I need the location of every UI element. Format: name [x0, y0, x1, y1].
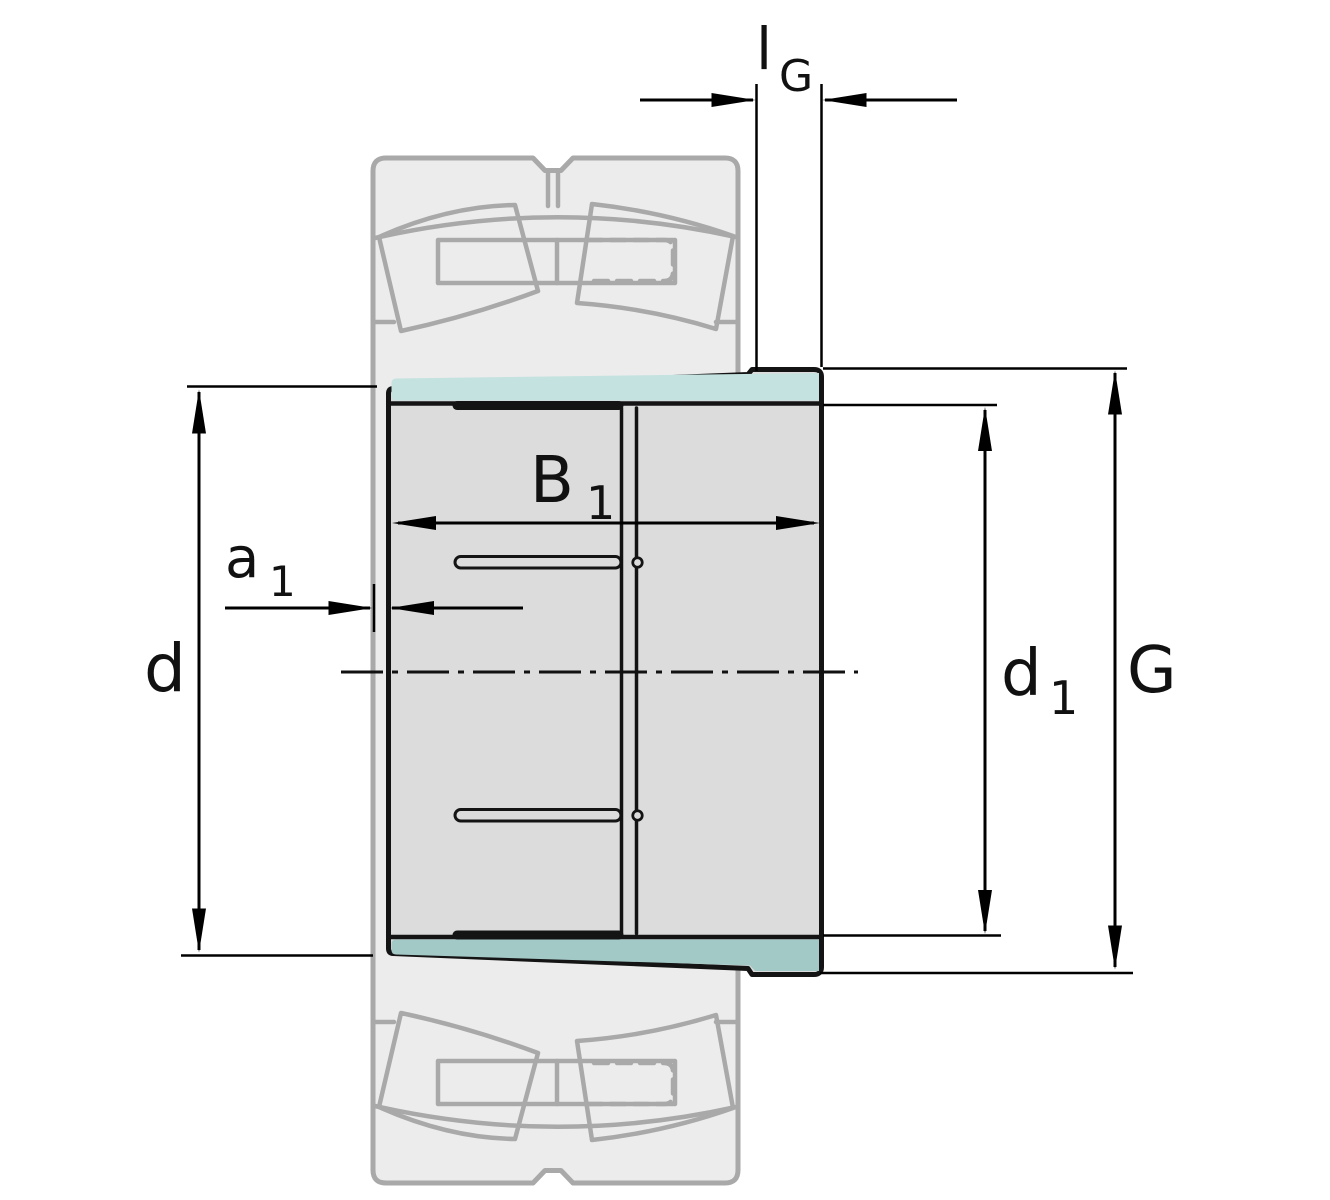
- arrowhead: [192, 909, 206, 953]
- adapter-sleeve-diagram: l G B 1 a 1 d: [0, 0, 1330, 1200]
- label-a1: a: [225, 526, 259, 591]
- label-a1-sub: 1: [269, 557, 296, 606]
- arrowhead: [823, 93, 867, 107]
- dimension-lG: l G: [640, 15, 957, 107]
- label-lG-sub: G: [779, 51, 813, 102]
- label-d: d: [144, 630, 186, 707]
- label-d1-sub: 1: [1049, 671, 1078, 725]
- label-B1: B: [530, 444, 574, 518]
- dimension-G: G: [1108, 371, 1177, 970]
- arrowhead: [978, 890, 992, 934]
- label-B1-sub: 1: [586, 476, 615, 530]
- slot-end-hole-upper: [633, 558, 643, 568]
- arrowhead: [1108, 371, 1122, 415]
- label-d1: d: [1001, 637, 1042, 711]
- arrowhead: [978, 407, 992, 451]
- arrowhead: [192, 390, 206, 434]
- label-lG: l: [756, 15, 772, 83]
- dimension-d1: d 1: [978, 407, 1078, 934]
- arrowhead: [1108, 926, 1122, 970]
- arrowhead: [712, 93, 756, 107]
- slot-end-hole-lower: [633, 811, 643, 821]
- technical-drawing-canvas: l G B 1 a 1 d: [0, 0, 1330, 1200]
- dimension-d: d: [144, 390, 206, 953]
- label-G: G: [1127, 634, 1177, 708]
- arrowhead: [329, 601, 373, 615]
